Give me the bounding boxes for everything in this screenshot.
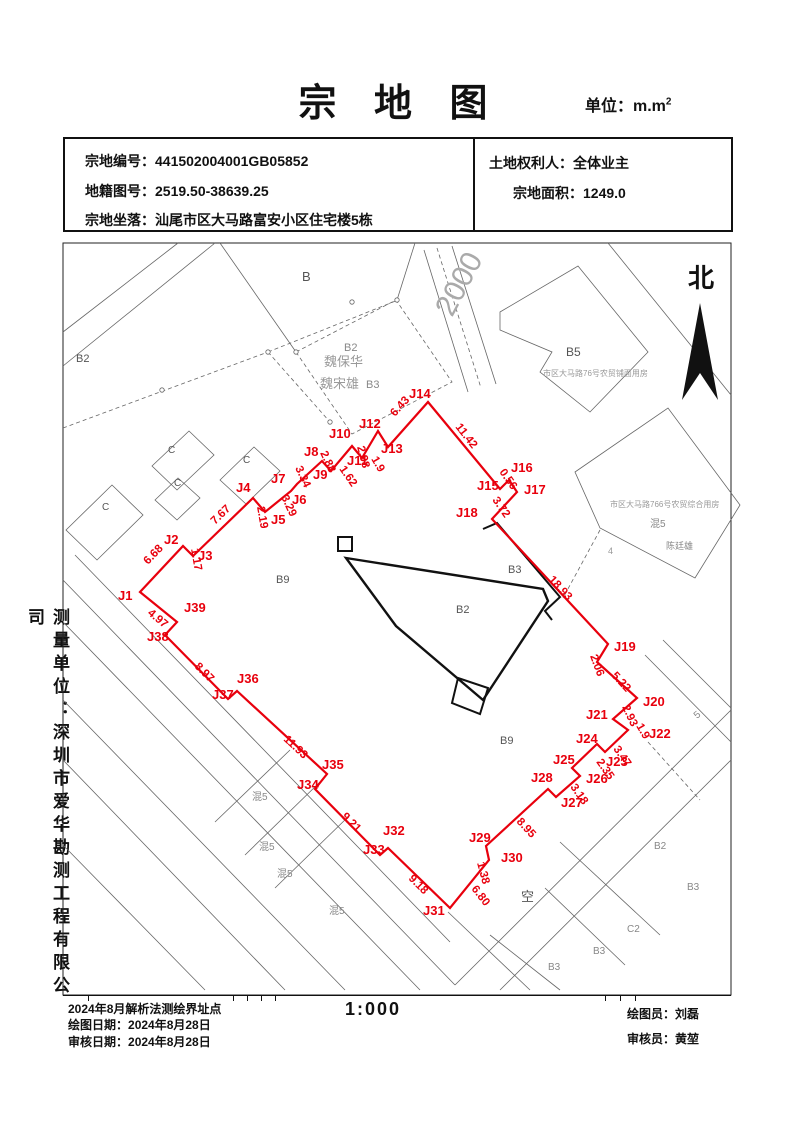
boundary-point-label: J12 (359, 416, 381, 431)
segment-distance-label: 6.68 (142, 542, 167, 567)
background-line (63, 580, 455, 985)
boundary-point-label: J4 (236, 480, 251, 495)
background-plot-label: 市区大马路76号农贸铺面用房 (543, 368, 648, 378)
segment-distance-label: 8.95 (514, 816, 538, 841)
background-line (663, 640, 731, 708)
background-line (63, 845, 205, 990)
segment-distance-label: 9.18 (406, 873, 431, 898)
boundary-point-label: J39 (184, 600, 206, 615)
building-outline (483, 523, 560, 620)
boundary-point-label: J19 (614, 639, 636, 654)
segment-distance-label: 1.9 (368, 455, 386, 475)
segment-distance-label: 3.72 (490, 495, 513, 520)
footer-tick (275, 995, 276, 1001)
boundary-node-circle (266, 350, 270, 354)
segment-distance-label: 1.38 (474, 861, 492, 886)
boundary-point-label: J25 (553, 752, 575, 767)
background-plot-label: 魏保华 (324, 354, 363, 369)
boundary-point-label: J13 (381, 441, 403, 456)
footer-tick (247, 995, 248, 1001)
background-plot-label: C (243, 455, 250, 466)
background-line (63, 243, 215, 366)
background-plot-label: 市区大马路766号农贸综合用房 (610, 499, 719, 509)
draw-date-row: 绘图日期：2024年8月28日 (68, 1016, 211, 1033)
footer-tick (605, 995, 606, 1001)
checker-name: 黄堃 (675, 1032, 699, 1046)
footer-tick (88, 995, 89, 1001)
background-plot (500, 266, 648, 412)
background-plot-label: C (174, 478, 181, 489)
background-plot-label: B2 (344, 342, 357, 354)
background-line (63, 700, 345, 990)
drafter-label: 绘图员： (627, 1007, 675, 1021)
background-line (215, 750, 290, 822)
background-plot-label: C (168, 445, 175, 456)
background-line (268, 300, 398, 352)
boundary-point-label: J22 (649, 726, 671, 741)
background-plot-label: B3 (687, 882, 700, 893)
boundary-point-label: J10 (329, 426, 351, 441)
background-plot-label: 陈廷雄 (666, 540, 693, 551)
background-plot-label: B2 (654, 841, 667, 852)
segment-distance-label: 4.97 (145, 607, 170, 631)
segment-distance-label: 2.19 (254, 505, 270, 529)
boundary-node-circle (160, 388, 164, 392)
boundary-point-label: J37 (212, 687, 234, 702)
boundary-point-label: J21 (586, 707, 608, 722)
check-date-value: 2024年8月28日 (128, 1035, 211, 1049)
boundary-point-label: J2 (164, 532, 178, 547)
background-line (648, 742, 700, 800)
footer-tick (233, 995, 234, 1001)
background-line (397, 243, 415, 300)
footer-tick (620, 995, 621, 1001)
footer-tick (261, 995, 262, 1001)
background-plot-label: 混5 (259, 841, 275, 853)
boundary-point-label: J34 (297, 777, 319, 792)
footer-tick (635, 995, 636, 1001)
boundary-point-label: J17 (524, 482, 546, 497)
background-line (75, 555, 450, 942)
draw-date-label: 绘图日期： (68, 1018, 128, 1032)
north-arrow-icon (682, 303, 718, 400)
segment-distance-label: 2.06 (587, 653, 606, 678)
boundary-point-label: J14 (409, 386, 431, 401)
background-line (545, 888, 625, 965)
background-plot-label: C (102, 502, 109, 513)
boundary-point-label: J33 (363, 842, 385, 857)
background-plot-label: 混5 (277, 868, 293, 880)
boundary-point-label: J38 (147, 629, 169, 644)
background-plot-label: B3 (593, 946, 606, 957)
segment-distance-label: 6.80 (469, 883, 492, 908)
boundary-point-label: J32 (383, 823, 405, 838)
background-line (220, 243, 296, 352)
segment-distance-label: 18.93 (546, 574, 574, 603)
checker-row: 审核员：黄堃 (627, 1030, 699, 1047)
background-plot-label: 混5 (329, 905, 345, 917)
background-plot-label: B2 (456, 604, 469, 616)
boundary-point-label: J8 (304, 444, 318, 459)
footer-divider (63, 995, 731, 996)
background-plot-label: 混5 (252, 791, 268, 803)
boundary-point-label: J20 (643, 694, 665, 709)
boundary-node-circle (350, 300, 354, 304)
boundary-point-label: J31 (423, 903, 445, 918)
cadastral-map: J1J2J3J4J5J6J7J8J9J10J11J12J13J14J15J16J… (0, 0, 800, 1132)
background-plot-label: B9 (500, 735, 513, 747)
segment-distance-label: 8.97 (192, 661, 216, 685)
boundary-point-label: J24 (576, 731, 598, 746)
background-line (560, 842, 660, 935)
background-plot-label: 5 (692, 709, 704, 721)
checker-label: 审核员： (627, 1032, 675, 1046)
background-plot-label: B3 (366, 379, 379, 391)
background-plot-label: B9 (276, 574, 289, 586)
background-plot (296, 300, 452, 434)
check-date-label: 审核日期： (68, 1035, 128, 1049)
background-plot-label: 4 (608, 546, 613, 556)
background-line (63, 243, 178, 332)
background-plot-label: B5 (566, 345, 581, 359)
boundary-point-label: J16 (511, 460, 533, 475)
background-line (455, 710, 731, 985)
background-plot-label: 2000 (429, 247, 489, 321)
background-plot-label: 魏宋雄 (320, 376, 359, 391)
building-outline (452, 678, 488, 714)
building-outline (338, 537, 352, 551)
boundary-node-circle (328, 420, 332, 424)
boundary-point-label: J28 (531, 770, 553, 785)
boundary-point-label: J1 (118, 588, 132, 603)
boundary-point-label: J36 (237, 671, 259, 686)
boundary-point-label: J18 (456, 505, 478, 520)
check-date-row: 审核日期：2024年8月28日 (68, 1033, 211, 1050)
survey-method-note: 2024年8月解析法测绘界址点 (68, 1000, 221, 1017)
background-plot-label: B2 (76, 353, 89, 365)
boundary-point-label: J29 (469, 830, 491, 845)
background-plot-label: B3 (508, 564, 521, 576)
background-plot (152, 431, 214, 490)
background-plot-label: C2 (627, 924, 640, 935)
boundary-point-label: J7 (271, 471, 285, 486)
building-outline (346, 558, 548, 700)
background-plot-label: 空 (521, 889, 534, 904)
background-plot-label: B3 (548, 962, 561, 973)
drafter-name: 刘磊 (675, 1007, 699, 1021)
segment-distance-label: 11.93 (281, 733, 310, 761)
map-scale: 1:000 (345, 999, 401, 1020)
background-plot (66, 485, 143, 560)
background-line (448, 912, 530, 990)
boundary-point-label: J30 (501, 850, 523, 865)
draw-date-value: 2024年8月28日 (128, 1018, 211, 1032)
segment-distance-label: 7.67 (209, 503, 233, 527)
boundary-node-circle (395, 298, 399, 302)
boundary-point-label: J5 (271, 512, 285, 527)
boundary-node-circle (294, 350, 298, 354)
background-plot-label: 混5 (650, 518, 666, 530)
segment-distance-label: 1.17 (188, 547, 204, 571)
boundary-point-label: J15 (477, 478, 499, 493)
boundary-point-label: J35 (322, 757, 344, 772)
background-plot (575, 408, 740, 578)
background-line (63, 352, 268, 428)
background-plot-label: B (302, 269, 311, 284)
drafter-row: 绘图员：刘磊 (627, 1005, 699, 1022)
